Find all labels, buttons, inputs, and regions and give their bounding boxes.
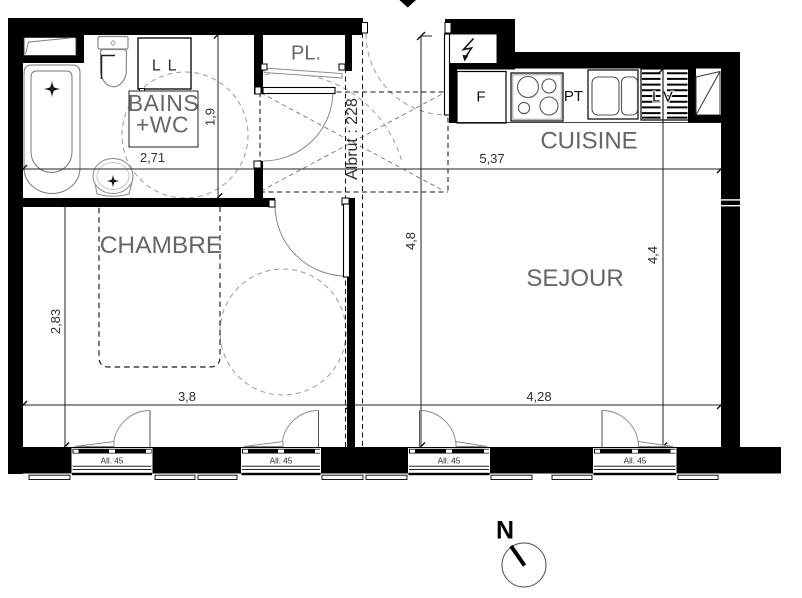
svg-text:F: F — [476, 89, 485, 106]
svg-text:All. 45: All. 45 — [438, 457, 461, 466]
svg-text:CHAMBRE: CHAMBRE — [100, 232, 223, 259]
svg-text:All. 45: All. 45 — [101, 457, 124, 466]
svg-text:N: N — [496, 517, 514, 545]
svg-text:Albrut : 228: Albrut : 228 — [344, 98, 361, 180]
svg-text:1,9: 1,9 — [203, 108, 218, 126]
svg-text:CUISINE: CUISINE — [540, 128, 637, 155]
svg-text:All. 45: All. 45 — [270, 457, 293, 466]
svg-text:4,8: 4,8 — [403, 232, 418, 250]
svg-text:4,4: 4,4 — [645, 246, 660, 264]
svg-text:5,37: 5,37 — [479, 151, 504, 166]
svg-text:PL.: PL. — [291, 43, 321, 65]
svg-text:All. 45: All. 45 — [624, 457, 647, 466]
svg-text:PT: PT — [564, 88, 583, 105]
svg-text:3,8: 3,8 — [178, 389, 196, 404]
svg-text:2,83: 2,83 — [48, 309, 63, 334]
svg-text:SEJOUR: SEJOUR — [526, 265, 623, 292]
svg-text:4,28: 4,28 — [526, 389, 551, 404]
svg-text:LV: LV — [652, 90, 677, 106]
svg-text:L L: L L — [152, 58, 178, 75]
svg-text:2,71: 2,71 — [140, 150, 165, 165]
svg-text:+WC: +WC — [136, 112, 189, 138]
